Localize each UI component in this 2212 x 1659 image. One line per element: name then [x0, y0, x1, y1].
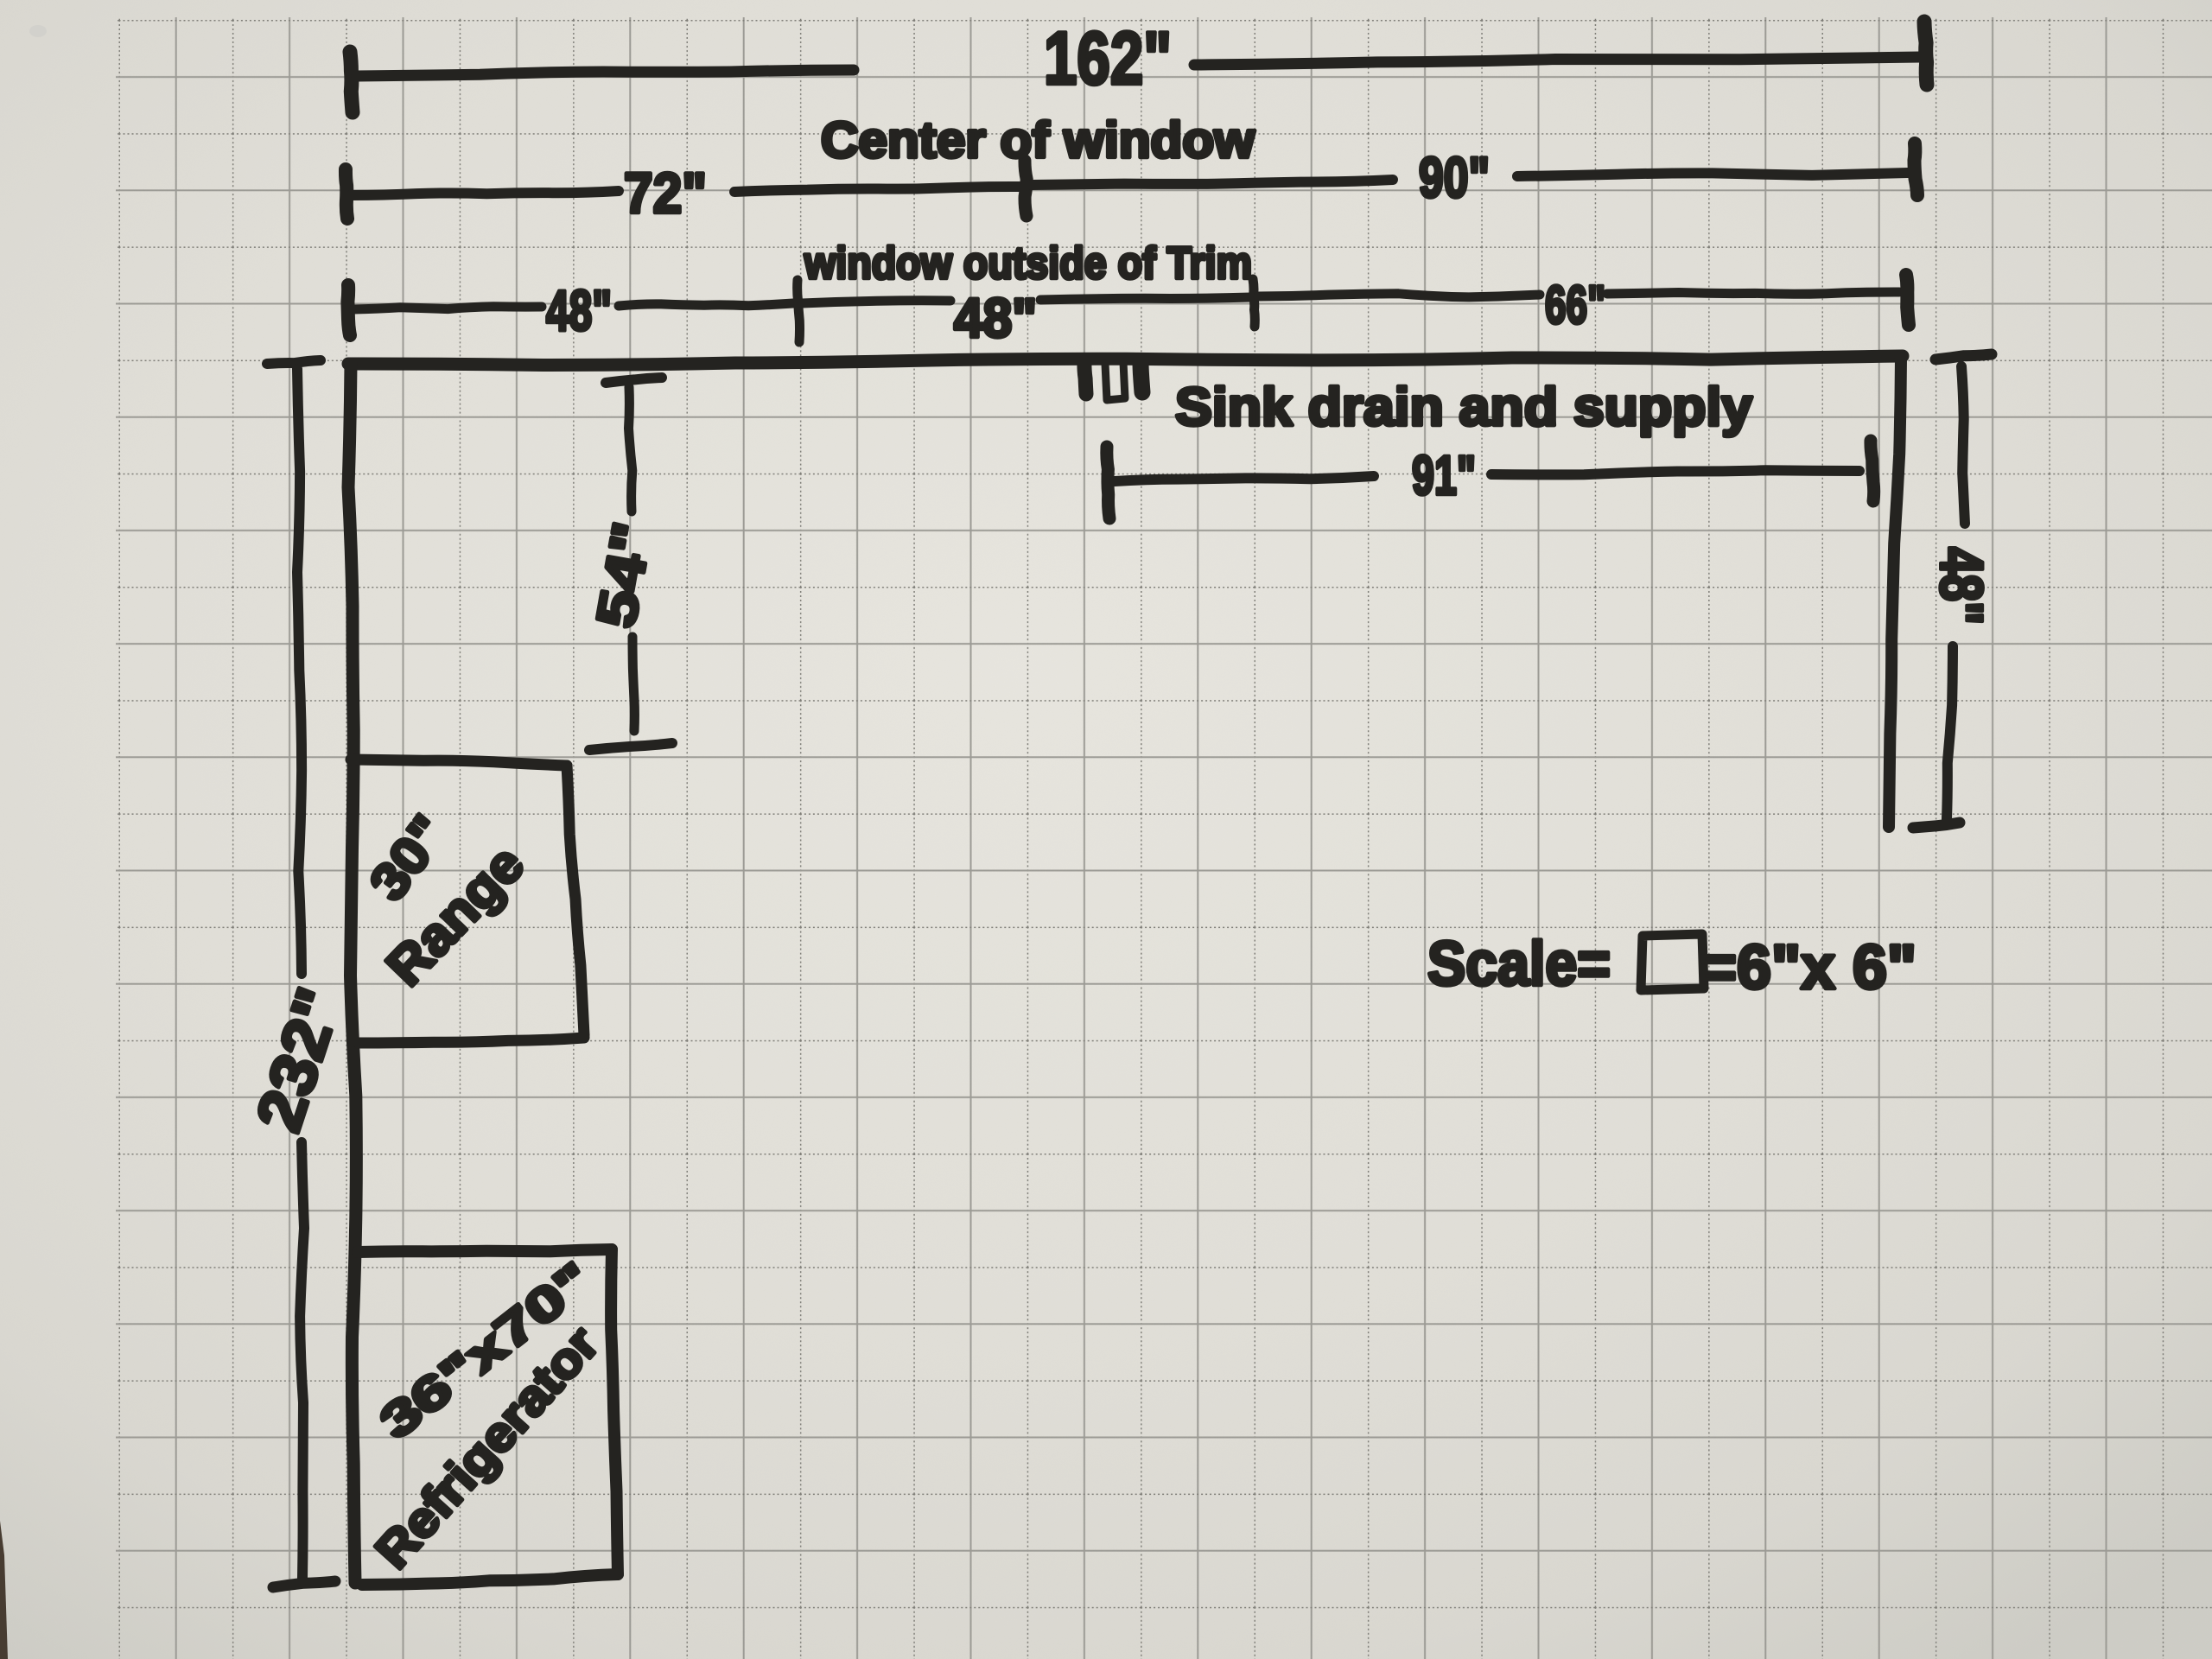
- svg-text:72": 72": [624, 161, 707, 225]
- svg-text:162": 162": [1044, 17, 1172, 100]
- svg-text:48": 48": [954, 287, 1037, 349]
- svg-text:91": 91": [1412, 444, 1476, 506]
- svg-text:Center of window: Center of window: [821, 112, 1255, 168]
- svg-text:=6"x 6": =6"x 6": [1700, 933, 1916, 1002]
- svg-text:Sink drain and supply: Sink drain and supply: [1175, 378, 1753, 437]
- svg-text:48": 48": [1928, 547, 1995, 625]
- svg-text:66": 66": [1545, 276, 1605, 335]
- svg-text:Scale=: Scale=: [1427, 930, 1611, 999]
- svg-text:window outside of Trim: window outside of Trim: [804, 238, 1252, 289]
- svg-text:48": 48": [546, 278, 612, 342]
- svg-text:90": 90": [1419, 145, 1490, 209]
